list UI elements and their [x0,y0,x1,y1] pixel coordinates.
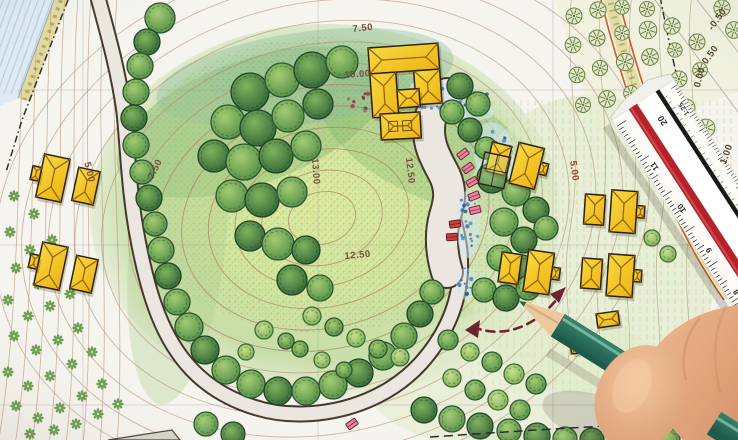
site-plan-photo: 11 10 9 8 20 1:25 7.50 10.00 13.00 12.50… [0,0,738,440]
site-plan-drawing: 11 10 9 8 20 1:25 [0,0,738,440]
